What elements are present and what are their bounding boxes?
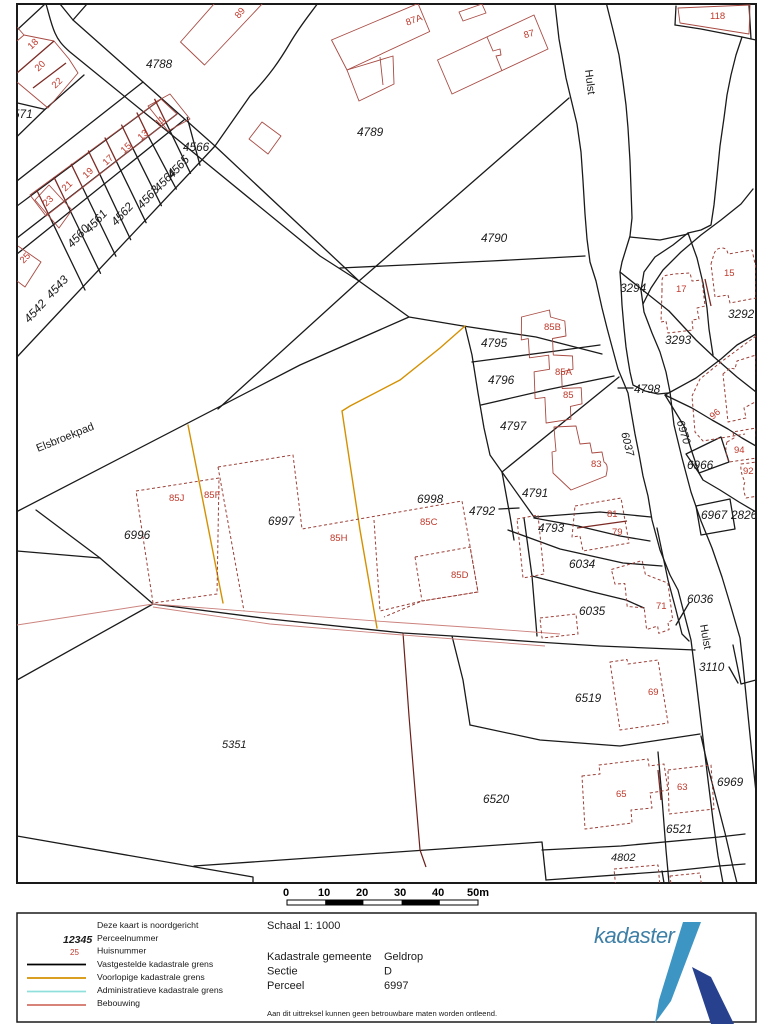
svg-text:69: 69 <box>648 687 659 698</box>
svg-text:6967: 6967 <box>701 508 728 522</box>
svg-text:Kadastrale gemeente: Kadastrale gemeente <box>267 951 372 963</box>
svg-text:kadaster: kadaster <box>594 923 677 948</box>
svg-text:6521: 6521 <box>666 822 692 836</box>
svg-text:17: 17 <box>676 284 687 295</box>
svg-text:94: 94 <box>734 445 745 456</box>
svg-text:40: 40 <box>432 887 444 899</box>
svg-text:83: 83 <box>591 459 602 470</box>
svg-text:6519: 6519 <box>575 691 602 705</box>
svg-text:6520: 6520 <box>483 792 510 806</box>
svg-text:4566: 4566 <box>183 140 210 154</box>
svg-text:4802: 4802 <box>611 852 635 864</box>
svg-text:4797: 4797 <box>500 419 527 433</box>
svg-text:6035: 6035 <box>579 604 606 618</box>
svg-text:6966: 6966 <box>687 458 714 472</box>
svg-text:85J: 85J <box>169 493 185 504</box>
svg-text:6036: 6036 <box>687 592 714 606</box>
svg-text:6996: 6996 <box>124 528 151 542</box>
svg-text:85C: 85C <box>420 517 438 528</box>
svg-text:63: 63 <box>677 782 688 793</box>
svg-text:Perceelnummer: Perceelnummer <box>97 933 158 943</box>
svg-text:Perceel: Perceel <box>267 980 304 992</box>
svg-text:85B: 85B <box>544 322 561 333</box>
svg-text:Deze kaart is noordgericht: Deze kaart is noordgericht <box>97 920 199 930</box>
svg-text:Administratieve kadastrale gre: Administratieve kadastrale grens <box>97 985 224 995</box>
svg-text:50m: 50m <box>467 887 489 899</box>
svg-text:6034: 6034 <box>569 557 596 571</box>
svg-text:85F: 85F <box>204 490 221 501</box>
svg-text:Aan dit uittreksel kunnen geen: Aan dit uittreksel kunnen geen betrouwba… <box>267 1009 497 1018</box>
svg-text:571: 571 <box>13 107 33 121</box>
svg-text:4795: 4795 <box>481 336 508 350</box>
svg-text:Vastgestelde kadastrale grens: Vastgestelde kadastrale grens <box>97 959 214 969</box>
svg-text:92: 92 <box>743 466 754 477</box>
svg-text:0: 0 <box>283 887 289 899</box>
svg-text:5351: 5351 <box>222 739 246 751</box>
svg-text:85D: 85D <box>451 570 469 581</box>
svg-text:20: 20 <box>356 887 368 899</box>
svg-text:Schaal 1: 1000: Schaal 1: 1000 <box>267 920 340 932</box>
svg-text:3293: 3293 <box>665 333 692 347</box>
svg-text:81: 81 <box>607 509 618 520</box>
svg-text:4789: 4789 <box>357 125 384 139</box>
svg-text:118: 118 <box>710 11 725 22</box>
svg-text:6997: 6997 <box>268 514 295 528</box>
svg-text:6997: 6997 <box>384 980 408 992</box>
svg-text:4790: 4790 <box>481 231 508 245</box>
svg-text:Sectie: Sectie <box>267 966 298 978</box>
svg-text:85: 85 <box>563 390 574 401</box>
svg-text:6998: 6998 <box>417 492 444 506</box>
svg-text:10: 10 <box>318 887 330 899</box>
svg-text:4791: 4791 <box>522 486 548 500</box>
svg-text:Geldrop: Geldrop <box>384 951 423 963</box>
svg-text:85A: 85A <box>555 367 573 378</box>
svg-text:79: 79 <box>612 527 623 538</box>
svg-text:2826: 2826 <box>730 508 758 522</box>
svg-text:D: D <box>384 966 392 978</box>
svg-text:4796: 4796 <box>488 373 515 387</box>
svg-text:85H: 85H <box>330 533 348 544</box>
svg-text:71: 71 <box>656 601 667 612</box>
svg-text:30: 30 <box>394 887 406 899</box>
svg-text:15: 15 <box>724 268 735 279</box>
svg-text:4793: 4793 <box>538 521 565 535</box>
svg-text:12345: 12345 <box>63 934 92 946</box>
svg-text:65: 65 <box>616 789 627 800</box>
svg-text:3294: 3294 <box>620 281 647 295</box>
svg-text:Voorlopige kadastrale grens: Voorlopige kadastrale grens <box>97 972 205 982</box>
svg-text:25: 25 <box>70 948 79 957</box>
svg-text:4792: 4792 <box>469 504 496 518</box>
svg-text:3110: 3110 <box>699 660 725 674</box>
svg-text:4798: 4798 <box>634 382 661 396</box>
svg-text:4788: 4788 <box>146 57 173 71</box>
svg-text:Bebouwing: Bebouwing <box>97 998 140 1008</box>
svg-text:Huisnummer: Huisnummer <box>97 946 146 956</box>
svg-text:6969: 6969 <box>717 775 744 789</box>
svg-text:3292: 3292 <box>728 307 755 321</box>
